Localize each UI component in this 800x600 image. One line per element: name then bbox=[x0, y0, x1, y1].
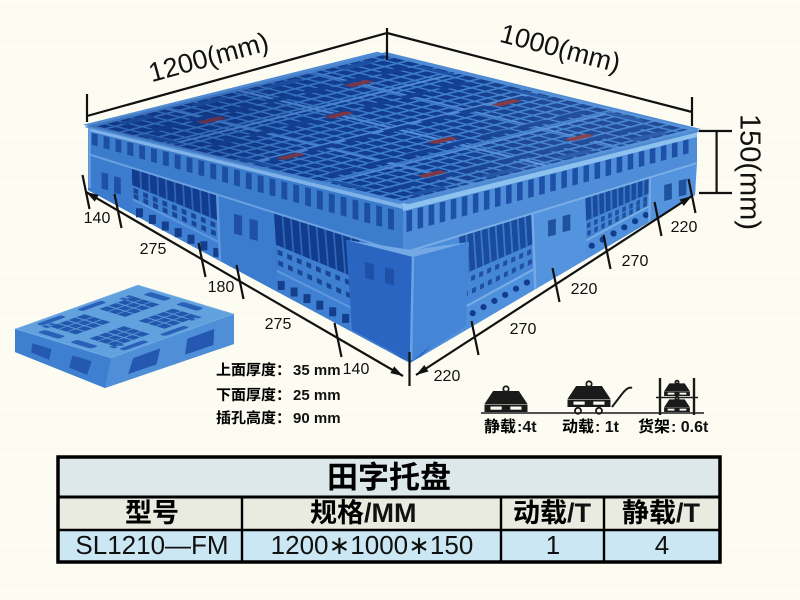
svg-text:220: 220 bbox=[671, 219, 698, 236]
svg-text:140: 140 bbox=[343, 361, 370, 378]
svg-text:: 0.6t: : 0.6t bbox=[671, 419, 709, 436]
svg-text:SL1210—FM: SL1210—FM bbox=[75, 530, 228, 560]
svg-text::4t: :4t bbox=[517, 419, 537, 436]
svg-text:: 1t: : 1t bbox=[595, 419, 620, 436]
svg-text:25 mm: 25 mm bbox=[293, 387, 341, 404]
svg-text:1: 1 bbox=[546, 530, 560, 560]
svg-text:90 mm: 90 mm bbox=[293, 410, 341, 427]
svg-text:35 mm: 35 mm bbox=[293, 362, 341, 379]
svg-text:270: 270 bbox=[510, 321, 537, 338]
svg-text:/T: /T bbox=[567, 498, 592, 528]
svg-text:275: 275 bbox=[140, 241, 167, 258]
svg-text:4: 4 bbox=[655, 530, 669, 560]
svg-text:/T: /T bbox=[676, 498, 701, 528]
svg-text:275: 275 bbox=[265, 316, 292, 333]
svg-text:1200∗1000∗150: 1200∗1000∗150 bbox=[271, 530, 474, 560]
svg-text:180: 180 bbox=[208, 279, 235, 296]
svg-text:220: 220 bbox=[571, 281, 598, 298]
svg-text:270: 270 bbox=[622, 253, 649, 270]
svg-text:150(mm): 150(mm) bbox=[733, 114, 765, 230]
svg-text:/MM: /MM bbox=[364, 498, 416, 528]
svg-text:140: 140 bbox=[84, 210, 111, 227]
svg-text:220: 220 bbox=[434, 368, 461, 385]
